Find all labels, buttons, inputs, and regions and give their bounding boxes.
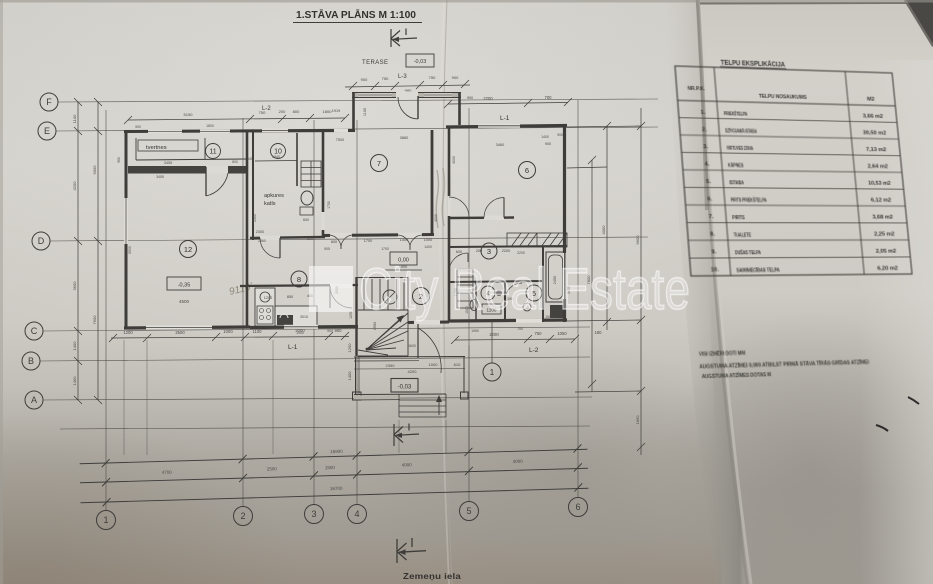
svg-text:City Real Estate: City Real Estate xyxy=(359,257,690,322)
